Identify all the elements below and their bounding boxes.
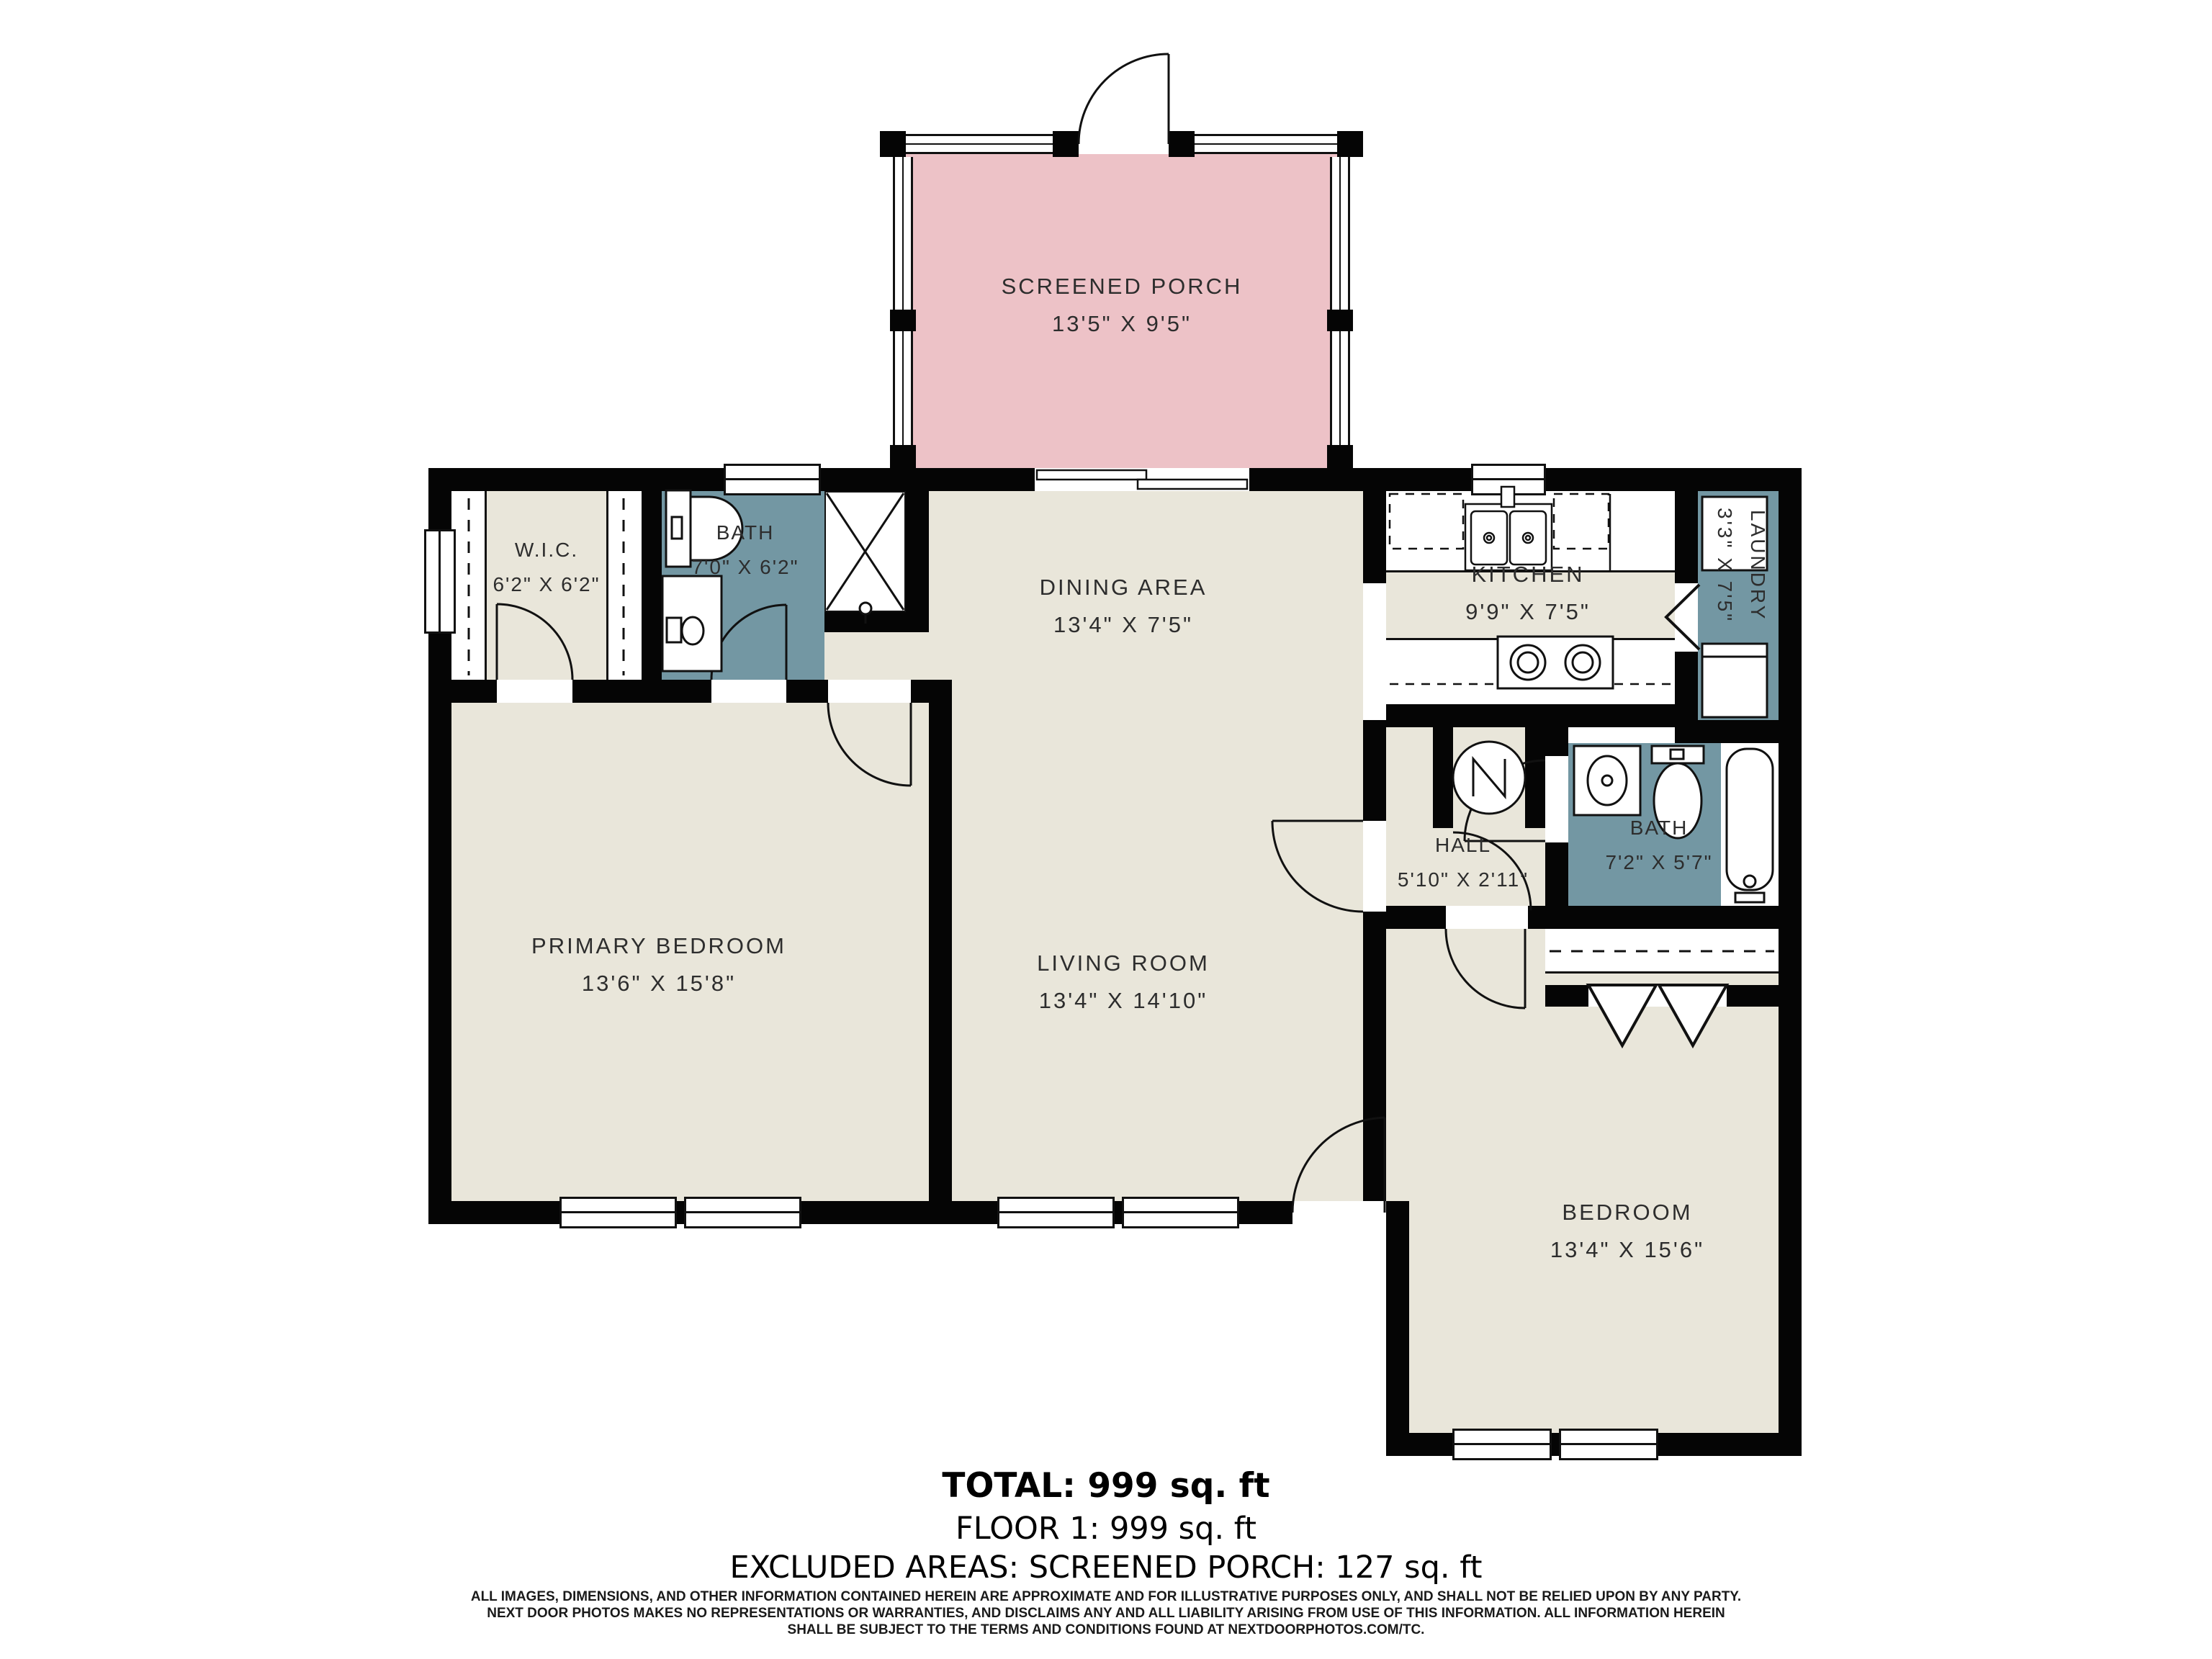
room-label-living-room: LIVING ROOM13'4" X 14'10" [1037,945,1210,1020]
porch-door [1079,54,1169,144]
disclaimer-text: ALL IMAGES, DIMENSIONS, AND OTHER INFORM… [0,1588,2212,1638]
sink-icon [662,576,721,671]
room-label-bath-top: BATH7'0" X 6'2" [691,516,799,585]
sliding-door [1037,470,1247,489]
bath-top-door [711,605,786,680]
bifold-doors [1588,985,1727,1046]
room-label-bath-right: BATH7'2" X 5'7" [1605,811,1712,880]
fixtures-layer [0,0,2212,1659]
shower-icon [827,493,904,624]
bedroom-door [1446,929,1525,1008]
sink-icon [1574,746,1640,815]
wic-door [497,604,572,680]
water-heater-icon [1453,742,1525,814]
hall-door [1272,821,1363,912]
room-label-bedroom: BEDROOM13'4" X 15'6" [1550,1194,1704,1269]
entry-arrow-icon [1666,585,1699,649]
room-label-wic: W.I.C.6'2" X 6'2" [493,533,600,602]
primary-bedroom-door [828,703,911,786]
stove-icon [1498,637,1613,688]
room-label-dining-area: DINING AREA13'4" X 7'5" [1040,569,1208,644]
room-label-screened-porch: SCREENED PORCH13'5" X 9'5" [1002,268,1243,343]
room-label-primary-bedroom: PRIMARY BEDROOM13'6" X 15'8" [531,927,786,1002]
excluded-area-text: EXCLUDED AREAS: SCREENED PORCH: 127 sq. … [0,1550,2212,1586]
floor-plan: SCREENED PORCH13'5" X 9'5" W.I.C.6'2" X … [0,0,2212,1659]
total-area-text: TOTAL: 999 sq. ft [0,1466,2212,1506]
room-label-kitchen: KITCHEN9'9" X 7'5" [1465,556,1591,631]
bathtub-icon [1727,749,1773,902]
dryer-icon [1702,644,1767,717]
room-label-hall: HALL5'10" X 2'11" [1398,828,1529,897]
room-label-laundry: LAUNDRY3'3" X 7'5" [1708,508,1774,623]
floor-area-text: FLOOR 1: 999 sq. ft [0,1511,2212,1547]
living-room-door [1292,1118,1385,1213]
